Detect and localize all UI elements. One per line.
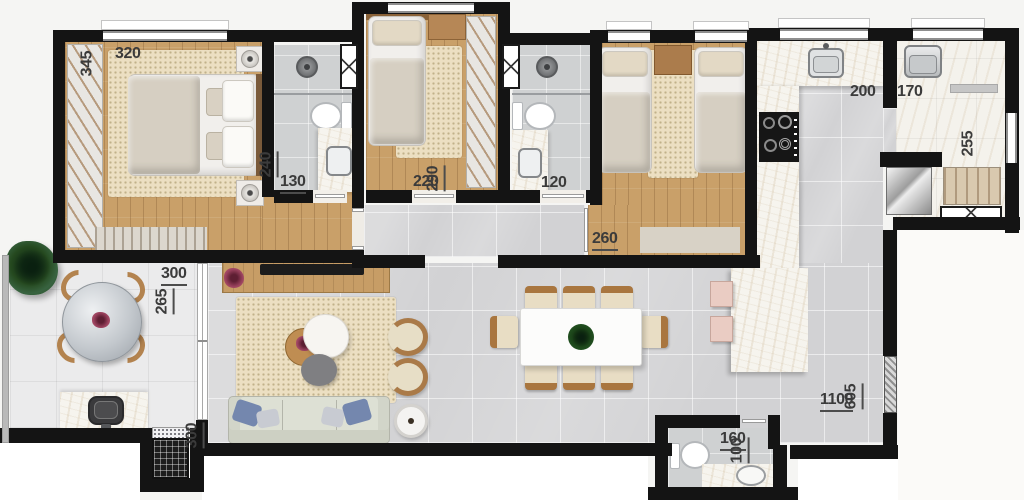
outside-area xyxy=(798,459,898,500)
window xyxy=(103,31,227,41)
window-ledge xyxy=(778,18,870,28)
wall xyxy=(352,2,364,212)
wall xyxy=(53,30,65,263)
door-opening-master xyxy=(352,212,364,246)
bed-pillow xyxy=(698,51,744,77)
door-jamb xyxy=(352,246,364,250)
wall xyxy=(883,230,897,356)
door-leaf xyxy=(542,194,584,198)
decor-flower xyxy=(224,268,244,288)
kitchen-floor xyxy=(797,85,883,270)
window xyxy=(695,31,747,42)
shower-head xyxy=(536,56,558,78)
kitchen-peninsula xyxy=(731,268,808,372)
window xyxy=(780,29,868,40)
entry-door xyxy=(884,356,897,413)
single-bed-blanket xyxy=(370,58,424,144)
table-flowers xyxy=(92,312,110,328)
toilet-tank xyxy=(512,102,523,130)
duct-shaft xyxy=(502,44,520,89)
door-leaf xyxy=(742,419,766,423)
dim-bedroom2-height: 290 xyxy=(425,166,446,192)
cooktop xyxy=(759,112,799,162)
door-leaf xyxy=(584,208,588,252)
door-leaf xyxy=(414,194,454,198)
outside-area xyxy=(0,443,140,500)
dim-living-wall-height: 300 xyxy=(184,423,205,449)
faucet xyxy=(823,43,829,49)
wall xyxy=(502,190,540,203)
dim-bedroom3-width: 260 xyxy=(592,230,618,251)
toilet-tank xyxy=(341,102,352,130)
table-lamp xyxy=(241,50,259,68)
laundry-tub-basin xyxy=(909,55,937,74)
bed-pillow xyxy=(222,126,254,168)
toilet xyxy=(524,102,556,130)
master-dresser xyxy=(95,227,207,250)
tv xyxy=(260,264,364,275)
dining-chair xyxy=(525,362,557,390)
wall xyxy=(498,2,510,203)
window-ledge xyxy=(911,18,985,28)
window-ledge xyxy=(101,20,229,30)
nightstand xyxy=(654,45,692,75)
wall xyxy=(196,443,672,456)
dining-chair xyxy=(563,362,595,390)
outside-area xyxy=(898,230,1024,500)
dim-kitchen-width: 200 xyxy=(850,83,876,101)
dim-balcony-height: 265 xyxy=(154,289,175,315)
window-ledge xyxy=(606,21,652,30)
dining-chair xyxy=(640,316,668,348)
dim-balcony-width: 300 xyxy=(161,265,187,286)
dim-bath1-width: 130 xyxy=(280,173,306,194)
wall xyxy=(510,33,602,45)
wall xyxy=(790,445,898,459)
dim-powder-height: 100 xyxy=(729,438,750,464)
toilet xyxy=(310,102,342,130)
wall xyxy=(366,190,412,203)
armchair xyxy=(388,358,428,396)
bar-stool xyxy=(710,316,733,342)
balcony-sink-basin xyxy=(94,401,118,419)
wall xyxy=(53,250,352,263)
wall xyxy=(648,487,798,500)
table-lamp xyxy=(241,184,259,202)
wall xyxy=(893,217,1020,230)
dim-laundry-height: 255 xyxy=(960,131,978,157)
wall xyxy=(768,415,780,449)
dining-chair xyxy=(490,316,518,348)
drying-deck xyxy=(943,167,1001,205)
window-ledge xyxy=(693,21,749,30)
shower-divider xyxy=(274,93,358,95)
twin-bed-blanket xyxy=(600,92,650,172)
wall xyxy=(655,415,740,428)
dining-chair xyxy=(601,362,633,390)
window xyxy=(388,3,474,13)
window xyxy=(1006,113,1017,163)
dim-social-height: 605 xyxy=(843,384,864,410)
potted-plant xyxy=(6,241,58,295)
shower-head xyxy=(296,56,318,78)
bed-pillow xyxy=(222,80,254,122)
bed-pillow xyxy=(602,51,648,77)
duct-shaft xyxy=(340,44,358,89)
coffee-table-white xyxy=(303,314,349,358)
bed-pillow xyxy=(372,20,422,46)
powder-sink xyxy=(736,465,766,486)
wall xyxy=(745,30,757,268)
desk xyxy=(428,14,466,40)
table-plant xyxy=(568,324,594,350)
dim-master-width: 320 xyxy=(115,45,141,63)
bedroom3-runner-rug xyxy=(640,227,740,253)
bedroom2-wardrobe xyxy=(466,16,496,188)
wall xyxy=(0,428,148,443)
outside-area xyxy=(202,456,648,500)
window xyxy=(913,29,983,40)
bath-sink xyxy=(518,148,542,178)
wall xyxy=(498,255,760,268)
shower-divider xyxy=(512,93,590,95)
dim-bath2-width: 120 xyxy=(541,174,567,192)
floor-lamp xyxy=(394,404,428,438)
wall xyxy=(352,255,425,268)
kitchen-sink-basin xyxy=(813,56,839,73)
sliding-door xyxy=(197,263,208,420)
fridge xyxy=(886,167,932,215)
coffee-table-gray xyxy=(301,354,337,386)
twin-bed-blanket xyxy=(696,92,746,172)
wall xyxy=(880,152,942,167)
window xyxy=(608,31,650,42)
hallway-floor xyxy=(364,205,585,257)
double-bed-blanket xyxy=(128,76,200,174)
dim-laundry-width: 170 xyxy=(897,83,923,101)
laundry-shelf xyxy=(950,84,998,93)
armchair xyxy=(388,318,428,356)
dim-master-height: 345 xyxy=(79,51,97,77)
floor-plan: 345 320 240 130 220 290 120 260 200 170 … xyxy=(0,0,1024,500)
bar-stool xyxy=(710,281,733,307)
door-leaf xyxy=(315,194,345,198)
door-jamb xyxy=(352,208,364,212)
wall xyxy=(590,33,602,205)
balcony-railing xyxy=(2,255,9,443)
dim-bath1-height: 240 xyxy=(258,152,279,178)
bath-sink xyxy=(326,146,352,176)
